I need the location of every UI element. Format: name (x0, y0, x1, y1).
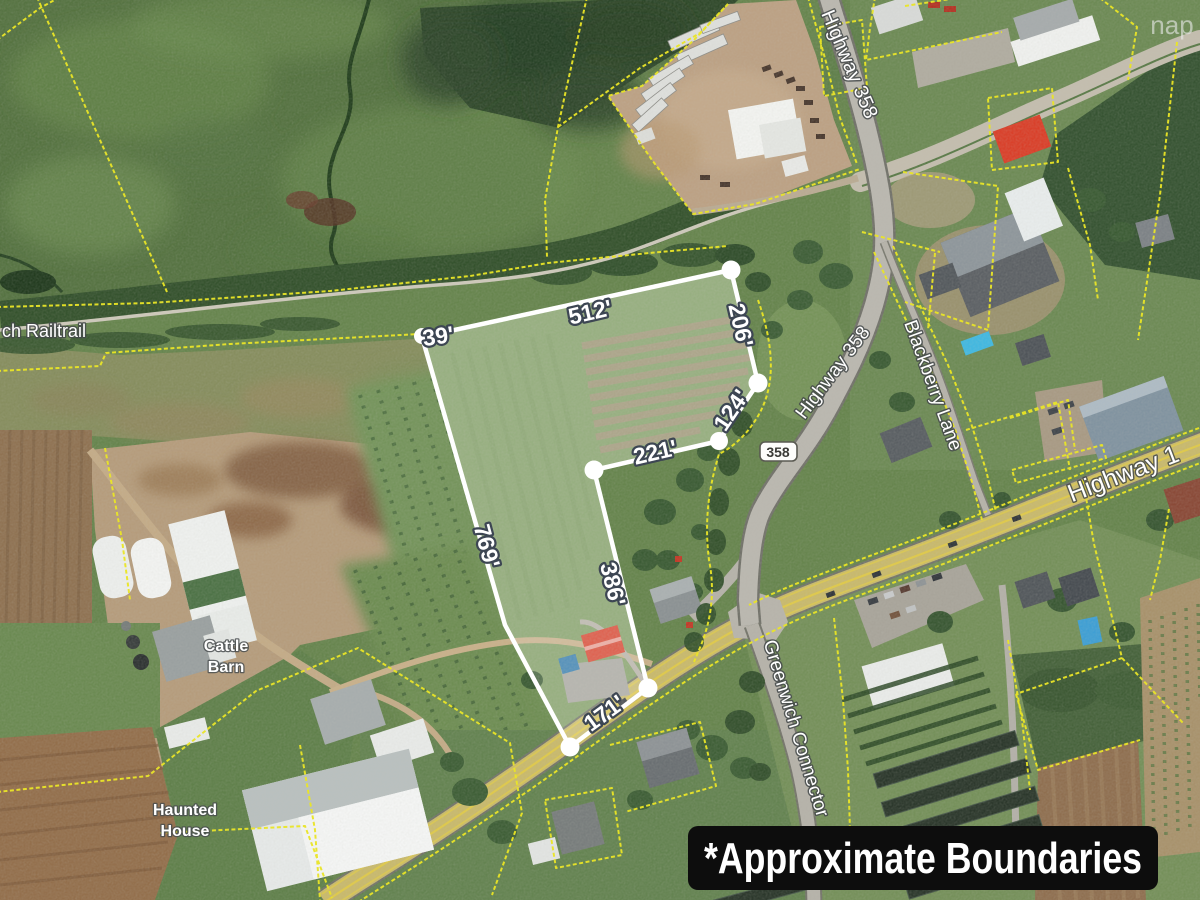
svg-text:*Approximate Boundaries: *Approximate Boundaries (704, 834, 1142, 883)
svg-text:39': 39' (421, 321, 455, 351)
svg-text:Cattle: Cattle (204, 638, 249, 655)
svg-text:nap: nap (1150, 10, 1193, 40)
svg-text:Barn: Barn (208, 659, 244, 676)
svg-text:Haunted: Haunted (153, 802, 217, 819)
svg-text:358: 358 (766, 444, 790, 460)
svg-text:ch Railtrail: ch Railtrail (2, 321, 86, 341)
svg-text:House: House (161, 823, 210, 840)
